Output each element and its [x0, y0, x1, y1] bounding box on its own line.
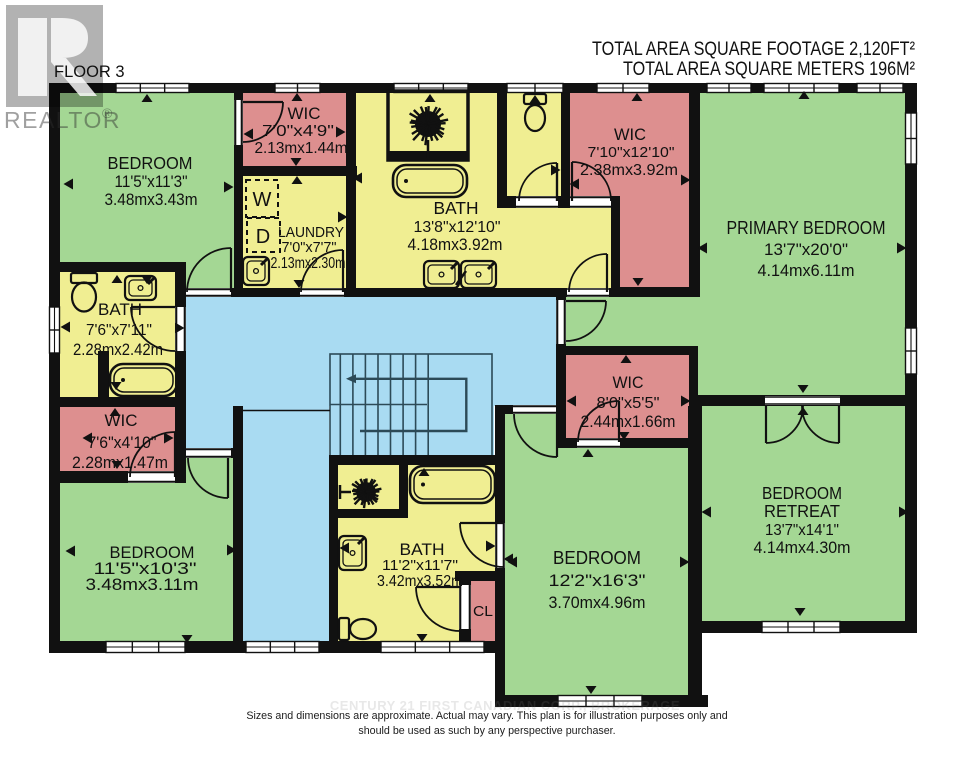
svg-text:WIC: WIC: [614, 126, 646, 144]
svg-text:BATH: BATH: [98, 300, 142, 319]
svg-text:8'0"x5'5": 8'0"x5'5": [597, 395, 660, 412]
svg-text:4.14mx6.11m: 4.14mx6.11m: [758, 262, 855, 280]
svg-text:BEDROOM: BEDROOM: [762, 483, 842, 503]
svg-text:13'7"x20'0": 13'7"x20'0": [764, 241, 848, 259]
svg-text:WIC: WIC: [105, 411, 138, 430]
svg-text:2.13mx1.44m: 2.13mx1.44m: [255, 140, 348, 157]
svg-text:Sizes and dimensions are appro: Sizes and dimensions are approximate. Ac…: [246, 710, 727, 722]
svg-text:3.42mx3.52m: 3.42mx3.52m: [377, 573, 463, 590]
svg-text:13'7"x14'1": 13'7"x14'1": [765, 522, 839, 539]
svg-text:FLOOR 3: FLOOR 3: [54, 63, 125, 81]
svg-text:W: W: [253, 189, 272, 211]
svg-text:13'8"x12'10": 13'8"x12'10": [414, 219, 501, 236]
svg-text:12'2"x16'3": 12'2"x16'3": [549, 571, 646, 590]
svg-text:WIC: WIC: [613, 374, 644, 392]
svg-text:3.48mx3.11m: 3.48mx3.11m: [86, 575, 199, 594]
svg-text:7'6"x4'10": 7'6"x4'10": [88, 434, 157, 452]
svg-text:®: ®: [102, 105, 113, 121]
svg-text:4.18mx3.92m: 4.18mx3.92m: [408, 236, 503, 254]
svg-text:BEDROOM: BEDROOM: [553, 548, 641, 568]
svg-text:LAUNDRY: LAUNDRY: [278, 224, 344, 241]
svg-text:WIC: WIC: [288, 105, 321, 123]
svg-text:7'0"x7'7": 7'0"x7'7": [282, 240, 337, 256]
svg-text:CL: CL: [473, 603, 493, 620]
svg-text:RETREAT: RETREAT: [764, 501, 840, 521]
svg-text:4.14mx4.30m: 4.14mx4.30m: [754, 539, 851, 557]
svg-text:3.70mx4.96m: 3.70mx4.96m: [549, 593, 646, 612]
svg-text:11'2"x11'7": 11'2"x11'7": [382, 557, 458, 574]
svg-text:2.13mx2.30m: 2.13mx2.30m: [271, 255, 346, 272]
svg-text:BEDROOM: BEDROOM: [108, 153, 193, 173]
svg-text:2.44mx1.66m: 2.44mx1.66m: [581, 413, 676, 431]
svg-text:3.48mx3.43m: 3.48mx3.43m: [105, 191, 198, 209]
svg-text:PRIMARY BEDROOM: PRIMARY BEDROOM: [727, 218, 886, 238]
svg-text:2.38mx3.92m: 2.38mx3.92m: [580, 162, 678, 179]
svg-text:7'6"x7'11": 7'6"x7'11": [86, 322, 152, 339]
svg-text:2.28mx2.42m: 2.28mx2.42m: [73, 341, 163, 359]
svg-text:TOTAL AREA SQUARE FOOTAGE 2,12: TOTAL AREA SQUARE FOOTAGE 2,120FT²: [592, 39, 915, 60]
svg-text:11'5"x11'3": 11'5"x11'3": [115, 173, 188, 191]
svg-text:D: D: [256, 226, 270, 248]
svg-text:TOTAL AREA SQUARE METERS 196M²: TOTAL AREA SQUARE METERS 196M²: [623, 59, 915, 80]
svg-text:7'10"x12'10": 7'10"x12'10": [588, 144, 675, 161]
svg-text:7'0"x4'9": 7'0"x4'9": [262, 123, 334, 140]
svg-text:should be used as such by any: should be used as such by any perspectiv…: [358, 725, 615, 737]
svg-text:BATH: BATH: [434, 198, 479, 218]
